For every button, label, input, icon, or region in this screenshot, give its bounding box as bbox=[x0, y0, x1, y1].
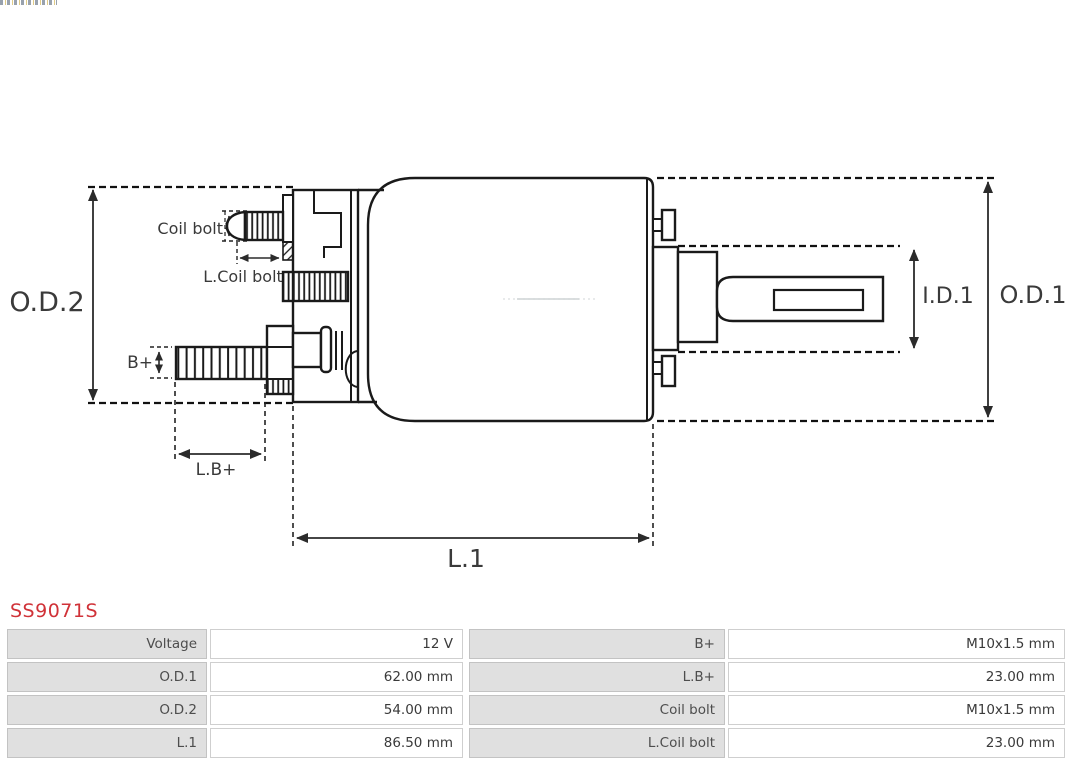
spec-value-bplus: M10x1.5 mm bbox=[728, 629, 1065, 659]
spec-table-left-half: Voltage 12 V O.D.1 62.00 mm O.D.2 54.00 … bbox=[7, 629, 463, 758]
coil-thread-bushing bbox=[283, 272, 348, 301]
l1-label: L.1 bbox=[447, 544, 485, 573]
spec-label-lcoilbolt: L.Coil bolt bbox=[469, 728, 725, 758]
od2-label: O.D.2 bbox=[9, 287, 84, 318]
spec-label-voltage: Voltage bbox=[7, 629, 207, 659]
coil-bolt-terminal bbox=[227, 212, 283, 240]
lb-plus-dimension: L.B+ bbox=[175, 382, 265, 480]
b-plus-label: B+ bbox=[127, 353, 153, 373]
spec-label-l1: L.1 bbox=[7, 728, 207, 758]
l1-dimension: L.1 bbox=[293, 406, 653, 573]
spec-value-lcoilbolt: 23.00 mm bbox=[728, 728, 1065, 758]
spec-label-od2: O.D.2 bbox=[7, 695, 207, 725]
part-number-link[interactable]: SS9071S bbox=[10, 600, 98, 622]
spec-label-coilbolt: Coil bolt bbox=[469, 695, 725, 725]
l-coil-bolt-label: L.Coil bolt bbox=[203, 267, 283, 286]
spec-value-od1: 62.00 mm bbox=[210, 662, 463, 692]
spec-value-l1: 86.50 mm bbox=[210, 728, 463, 758]
spec-label-bplus: B+ bbox=[469, 629, 725, 659]
spec-value-od2: 54.00 mm bbox=[210, 695, 463, 725]
product-spec-page: O.D.2 O.D.1 I.D.1 L.1 L.B+ bbox=[0, 0, 1080, 767]
solenoid-technical-drawing: O.D.2 O.D.1 I.D.1 L.1 L.B+ bbox=[0, 0, 1080, 592]
spec-value-coilbolt: M10x1.5 mm bbox=[728, 695, 1065, 725]
plunger-assembly bbox=[653, 247, 883, 350]
id1-label: I.D.1 bbox=[922, 284, 973, 309]
coil-bolt-label: Coil bolt bbox=[157, 219, 223, 238]
spec-value-lbplus: 23.00 mm bbox=[728, 662, 1065, 692]
spec-label-lbplus: L.B+ bbox=[469, 662, 725, 692]
spec-label-od1: O.D.1 bbox=[7, 662, 207, 692]
od1-label: O.D.1 bbox=[1000, 281, 1067, 309]
spec-table: Voltage 12 V O.D.1 62.00 mm O.D.2 54.00 … bbox=[7, 629, 1065, 758]
cylinder-housing bbox=[368, 178, 653, 421]
b-plus-dimension: B+ bbox=[127, 347, 172, 378]
l-coil-bolt-dimension: L.Coil bolt bbox=[203, 242, 283, 286]
spec-table-right-half: B+ M10x1.5 mm L.B+ 23.00 mm Coil bolt M1… bbox=[469, 629, 1065, 758]
spec-value-voltage: 12 V bbox=[210, 629, 463, 659]
lb-plus-label: L.B+ bbox=[196, 460, 237, 480]
